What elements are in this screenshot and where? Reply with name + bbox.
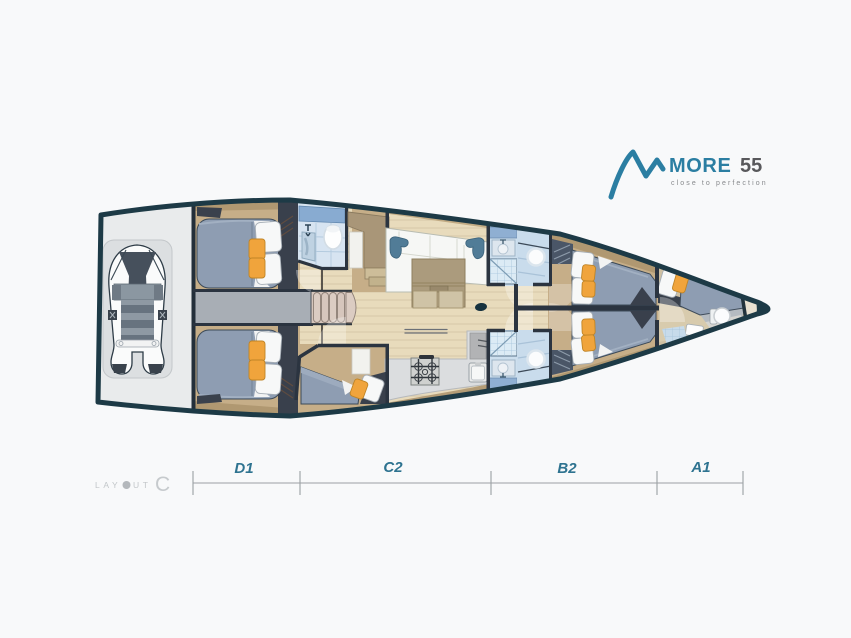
svg-text:LAY: LAY xyxy=(95,480,121,490)
svg-text:D1: D1 xyxy=(234,460,253,477)
svg-text:55: 55 xyxy=(740,155,762,177)
svg-text:C: C xyxy=(155,473,170,496)
svg-text:UT: UT xyxy=(133,480,152,490)
svg-text:B2: B2 xyxy=(557,460,577,477)
svg-text:C2: C2 xyxy=(383,459,403,476)
svg-text:MORE: MORE xyxy=(669,155,731,177)
svg-text:A1: A1 xyxy=(690,459,710,476)
svg-text:close to perfection: close to perfection xyxy=(671,180,768,187)
